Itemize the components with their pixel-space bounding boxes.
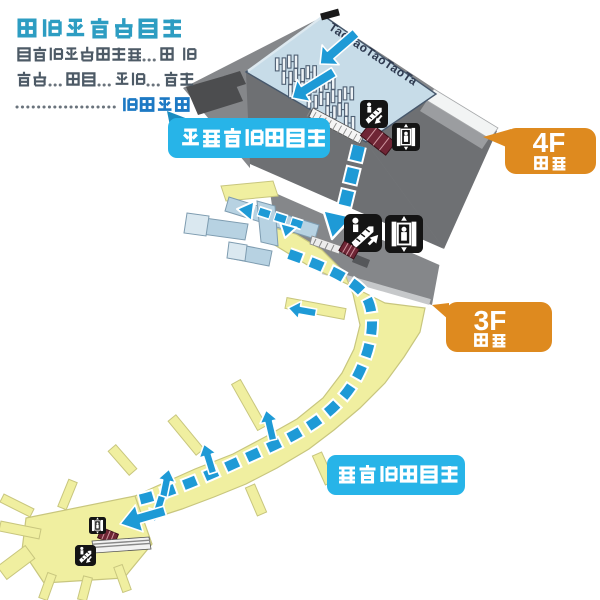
svg-text:3F: 3F [474,305,507,336]
svg-text:4F: 4F [533,127,566,158]
